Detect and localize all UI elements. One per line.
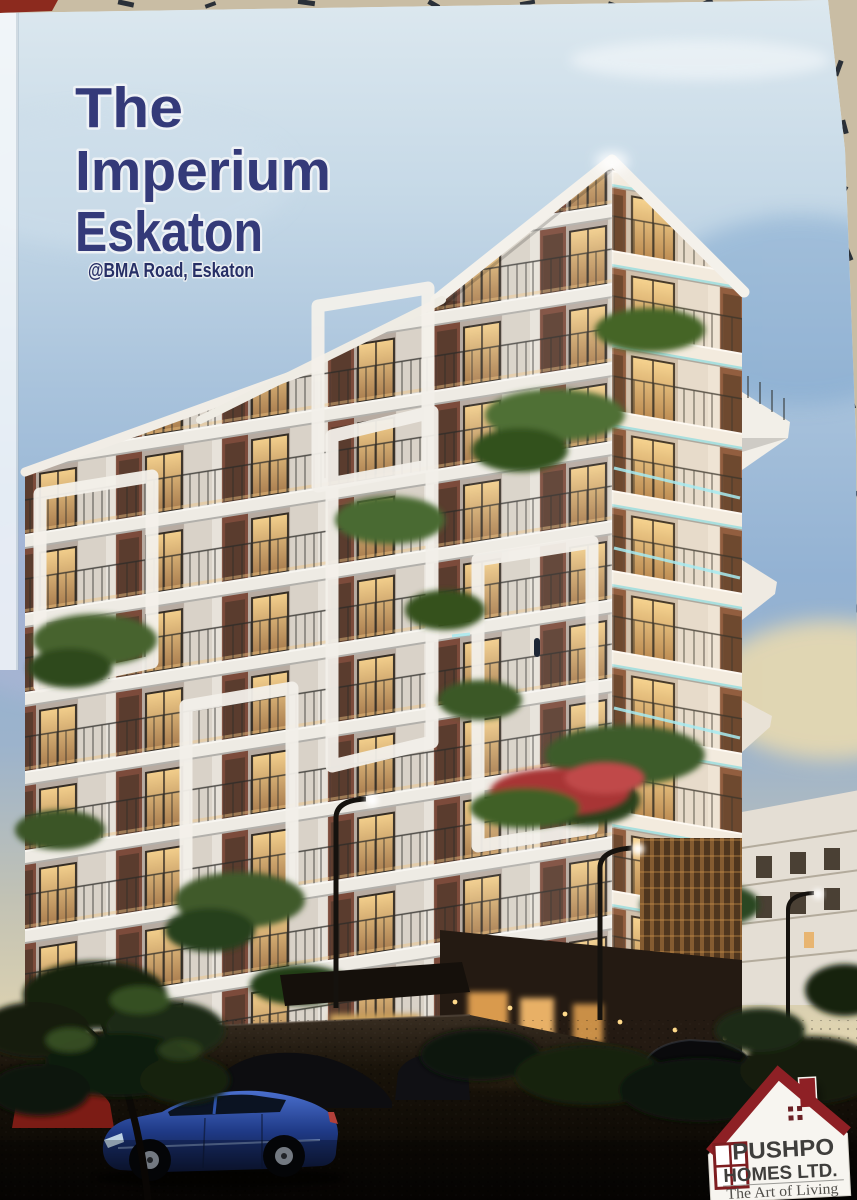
title-line-3: Eskaton	[75, 200, 263, 264]
brochure-photo: The Imperium Eskaton @BMA Road, Eskaton	[0, 0, 857, 1200]
brochure-page: The Imperium Eskaton @BMA Road, Eskaton	[0, 0, 857, 1200]
page-curl	[0, 10, 19, 670]
logo-company-line-1: PUSHPO	[732, 1133, 835, 1164]
title-line-1: The	[75, 76, 183, 140]
cloud	[570, 40, 830, 80]
address-subtitle: @BMA Road, Eskaton	[88, 260, 254, 282]
table-red-mark	[0, 0, 58, 13]
person-silhouette	[534, 638, 540, 657]
title-line-2: Imperium	[75, 139, 331, 203]
cover-illustration: The Imperium Eskaton @BMA Road, Eskaton	[0, 0, 857, 1200]
